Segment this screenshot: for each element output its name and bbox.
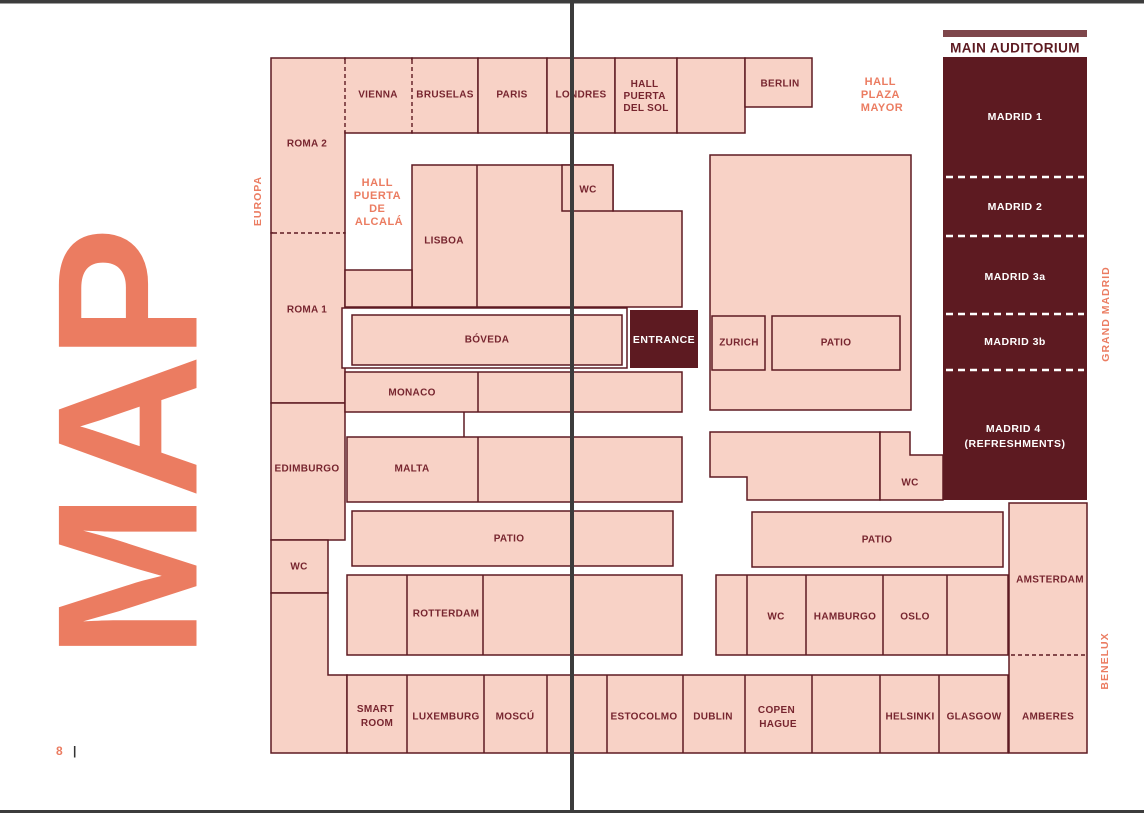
- label-berlin: BERLIN: [760, 79, 799, 90]
- label-monaco: MONACO: [388, 388, 435, 399]
- label-copenhague-line2: HAGUE: [759, 719, 797, 730]
- label-smart-room-line1: SMART: [357, 704, 394, 715]
- label-paris: PARIS: [496, 90, 527, 101]
- room-zurich-block: [710, 155, 911, 410]
- label-wc-left: WC: [290, 562, 307, 573]
- label-luxemburg: LUXEMBURG: [412, 712, 479, 723]
- room-roma1: [271, 233, 345, 403]
- map-title: MAP: [17, 233, 240, 659]
- label-madrid3a: MADRID 3a: [984, 271, 1045, 283]
- label-patio-zurich: PATIO: [821, 338, 852, 349]
- label-hall-plaza-mayor-line3: MAYOR: [861, 102, 903, 114]
- label-wc-right-upper: WC: [901, 478, 918, 489]
- label-hall-puerta-del-sol-line3: DEL SOL: [623, 103, 668, 114]
- label-wc-center: WC: [579, 185, 596, 196]
- label-hall-puerta-del-sol-line1: HALL: [631, 79, 659, 90]
- floor-plan-page: ROMA 2 ROMA 1 EDIMBURGO WC VIENNA BRUSEL…: [0, 0, 1144, 813]
- label-wc-right-lower: WC: [767, 612, 784, 623]
- label-hall-plaza-mayor: HALL PLAZA MAYOR: [861, 76, 903, 114]
- label-madrid1: MADRID 1: [988, 111, 1043, 123]
- page-number: 8: [56, 744, 63, 758]
- label-hall-plaza-mayor-line2: PLAZA: [861, 89, 900, 101]
- label-oslo: OSLO: [900, 612, 930, 623]
- room-alcala-annex: [345, 270, 412, 307]
- label-glasgow: GLASGOW: [947, 712, 1002, 723]
- label-entrance: ENTRANCE: [633, 334, 695, 346]
- label-grand-madrid: GRAND MADRID: [1100, 266, 1112, 361]
- label-hall-puerta-del-sol-line2: PUERTA: [624, 91, 666, 102]
- label-hall-plaza-mayor-line1: HALL: [865, 76, 896, 88]
- label-amberes: AMBERES: [1022, 712, 1074, 723]
- label-londres: LONDRES: [556, 90, 607, 101]
- label-vienna: VIENNA: [358, 90, 398, 101]
- label-madrid3b: MADRID 3b: [984, 336, 1046, 348]
- label-hamburgo: HAMBURGO: [814, 612, 876, 623]
- label-estocolmo: ESTOCOLMO: [611, 712, 678, 723]
- label-rotterdam: ROTTERDAM: [413, 609, 480, 620]
- label-hall-puerta-de-alcala-line2: PUERTA: [354, 190, 401, 202]
- label-hall-puerta-de-alcala-line1: HALL: [362, 177, 393, 189]
- room-top-unlabeled: [677, 58, 745, 133]
- label-benelux: BENELUX: [1099, 632, 1111, 689]
- page-fold-line: [570, 0, 574, 813]
- label-lisboa: LISBOA: [424, 236, 464, 247]
- label-hall-puerta-de-alcala-line3: DE: [369, 203, 385, 215]
- label-smart-room-line2: ROOM: [361, 718, 393, 729]
- label-copenhague-line1: COPEN: [758, 705, 795, 716]
- label-patio-right: PATIO: [862, 535, 893, 546]
- label-zurich: ZURICH: [719, 338, 759, 349]
- label-moscu: MOSCÚ: [496, 710, 535, 723]
- room-l-block: [710, 432, 880, 500]
- label-hall-puerta-de-alcala: HALL PUERTA DE ALCALÁ: [354, 177, 405, 228]
- floor-plan-map: ROMA 2 ROMA 1 EDIMBURGO WC VIENNA BRUSEL…: [0, 0, 1144, 813]
- label-roma1: ROMA 1: [287, 305, 327, 316]
- label-roma2: ROMA 2: [287, 139, 327, 150]
- label-madrid4-line2: (REFRESHMENTS): [965, 438, 1066, 450]
- label-boveda: BÓVEDA: [465, 333, 510, 346]
- label-hall-puerta-de-alcala-line4: ALCALÁ: [355, 215, 403, 228]
- page-number-separator: |: [73, 744, 76, 758]
- label-helsinki: HELSINKI: [885, 712, 934, 723]
- main-auditorium-title: MAIN AUDITORIUM: [950, 41, 1080, 56]
- room-wc-right-upper: [880, 432, 943, 500]
- label-patio-left: PATIO: [494, 534, 525, 545]
- auditorium-accent-bar: [943, 30, 1087, 37]
- label-dublin: DUBLIN: [693, 712, 733, 723]
- label-madrid4-line1: MADRID 4: [986, 423, 1041, 435]
- label-malta: MALTA: [394, 464, 429, 475]
- room-left-corner: [271, 593, 347, 753]
- label-amsterdam: AMSTERDAM: [1016, 575, 1084, 586]
- room-rotterdam-row: [347, 575, 682, 655]
- label-europa: EUROPA: [252, 176, 264, 226]
- label-edimburgo: EDIMBURGO: [275, 464, 340, 475]
- label-madrid2: MADRID 2: [988, 201, 1043, 213]
- label-bruselas: BRUSELAS: [416, 90, 473, 101]
